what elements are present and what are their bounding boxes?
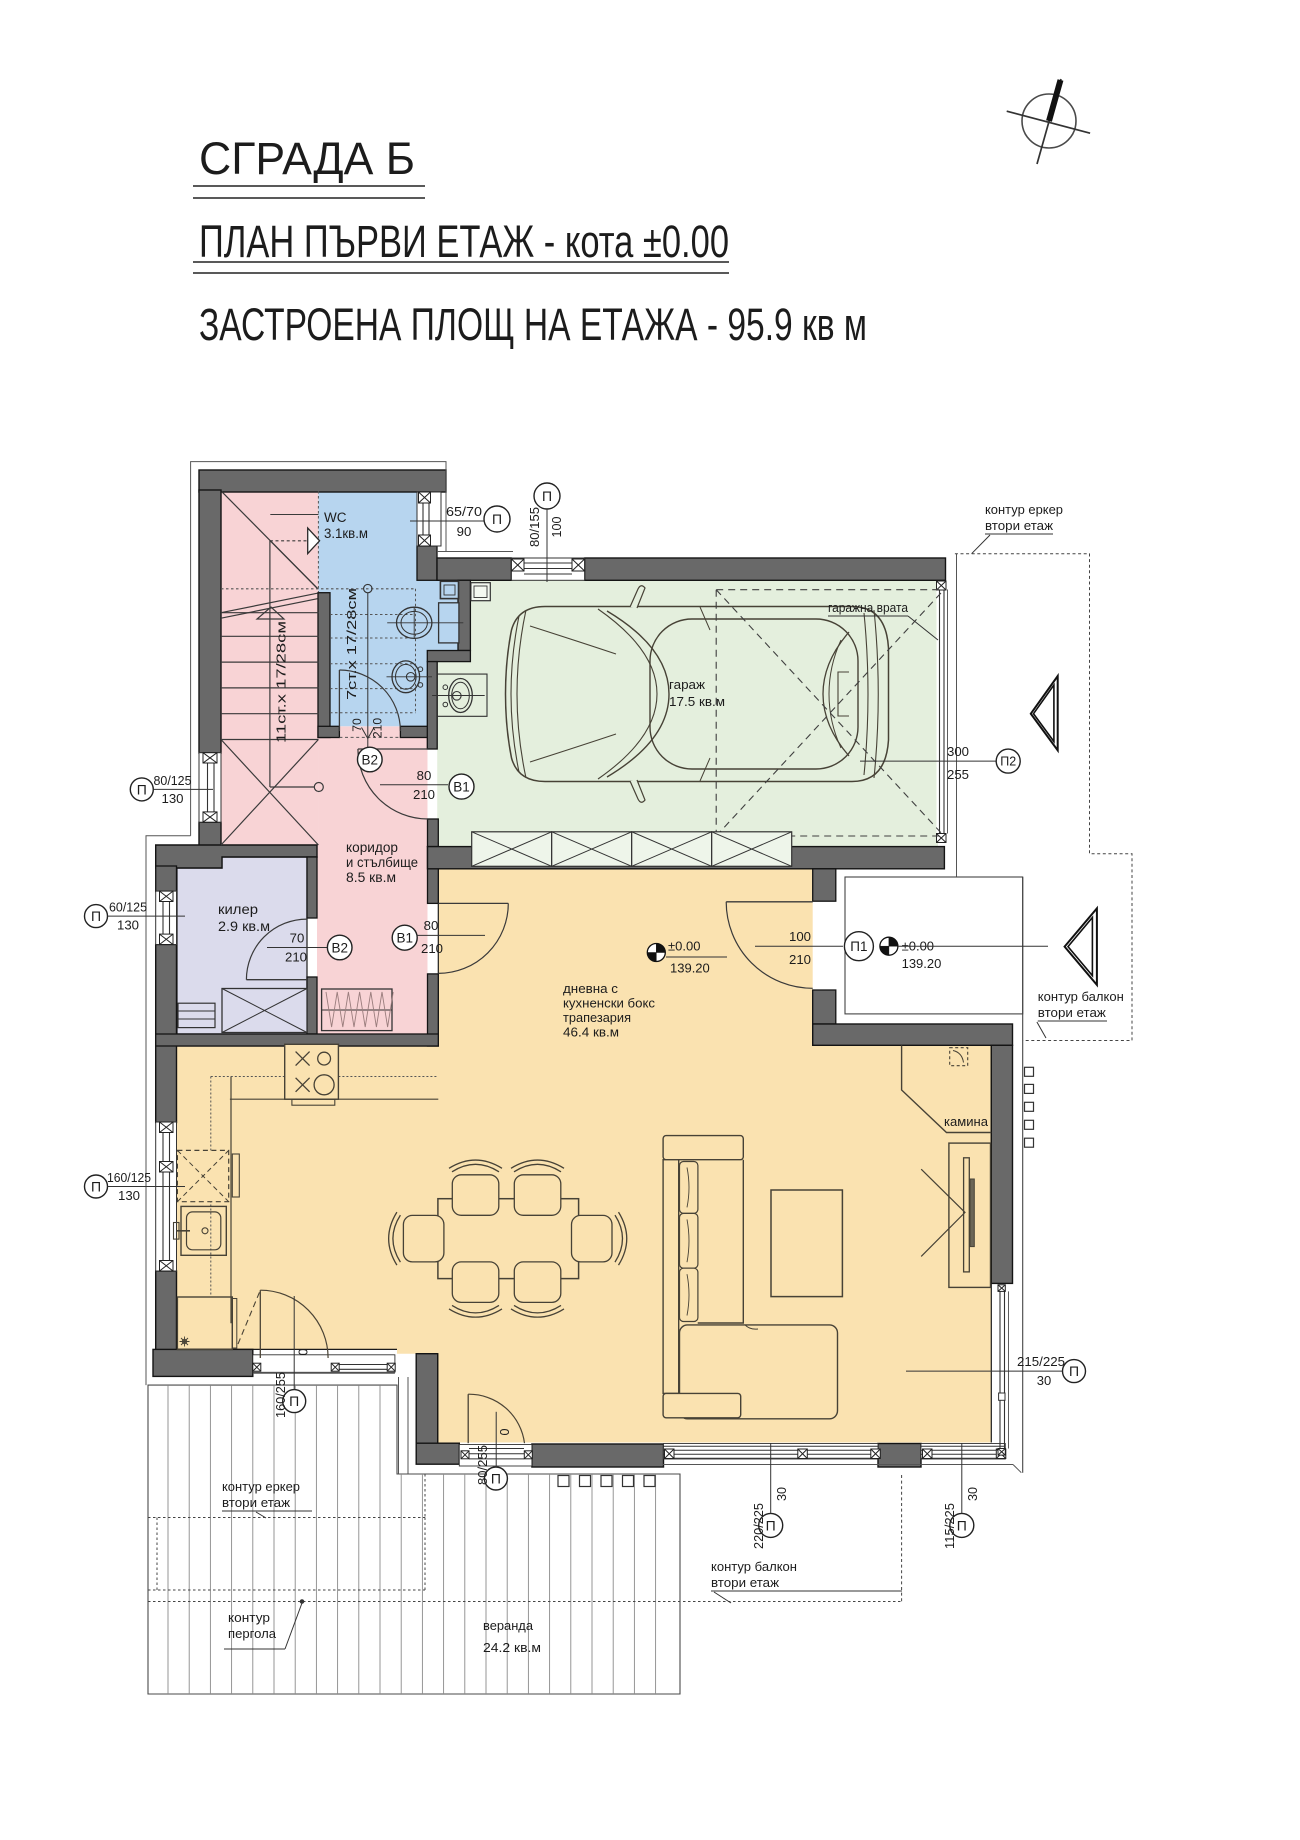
- svg-text:контур балкон: контур балкон: [1038, 989, 1124, 1004]
- svg-text:пергола: пергола: [228, 1626, 277, 1641]
- svg-text:11ст.х 17/28см: 11ст.х 17/28см: [274, 621, 289, 743]
- svg-text:60/125: 60/125: [109, 900, 147, 915]
- svg-text:100: 100: [789, 929, 811, 944]
- svg-text:гаражна врата: гаражна врата: [828, 600, 909, 615]
- svg-text:8.5 кв.м: 8.5 кв.м: [346, 870, 396, 885]
- svg-text:220/225: 220/225: [752, 1503, 766, 1549]
- svg-text:контур: контур: [228, 1610, 270, 1625]
- svg-text:210: 210: [789, 952, 811, 967]
- svg-text:139.20: 139.20: [670, 961, 710, 976]
- svg-text:65/70: 65/70: [446, 504, 482, 519]
- svg-text:ПЛАН ПЪРВИ ЕТАЖ - кота ±0.00: ПЛАН ПЪРВИ ЕТАЖ - кота ±0.00: [199, 216, 729, 267]
- svg-text:160/255: 160/255: [274, 1372, 288, 1418]
- svg-text:П: П: [289, 1393, 299, 1409]
- svg-text:30: 30: [966, 1487, 980, 1501]
- svg-text:П: П: [766, 1517, 776, 1533]
- svg-text:В2: В2: [362, 752, 379, 767]
- svg-text:80/125: 80/125: [154, 773, 192, 788]
- svg-text:контур балкон: контур балкон: [711, 1559, 797, 1574]
- svg-text:±0.00: ±0.00: [668, 939, 700, 954]
- svg-text:210: 210: [371, 718, 385, 739]
- svg-text:втори етаж: втори етаж: [985, 518, 1053, 533]
- svg-text:160/125: 160/125: [107, 1170, 151, 1185]
- svg-text:80: 80: [417, 768, 432, 783]
- svg-text:70: 70: [290, 931, 305, 946]
- svg-text:П: П: [957, 1517, 967, 1533]
- svg-text:80/155: 80/155: [528, 507, 542, 547]
- svg-text:210: 210: [413, 787, 435, 802]
- svg-text:веранда: веранда: [483, 1618, 534, 1633]
- svg-text:В1: В1: [453, 779, 470, 794]
- svg-text:втори етаж: втори етаж: [1038, 1005, 1106, 1020]
- svg-text:П: П: [91, 1179, 101, 1195]
- svg-text:7ст.х 17/28см: 7ст.х 17/28см: [344, 588, 359, 700]
- svg-text:П2: П2: [1000, 755, 1016, 769]
- svg-text:коридор: коридор: [346, 840, 398, 855]
- svg-text:130: 130: [117, 918, 139, 933]
- svg-text:контур еркер: контур еркер: [222, 1479, 300, 1494]
- svg-text:90: 90: [457, 524, 472, 539]
- svg-text:втори етаж: втори етаж: [711, 1575, 779, 1590]
- svg-text:камина: камина: [944, 1115, 988, 1129]
- svg-text:0: 0: [297, 1348, 311, 1355]
- svg-text:П: П: [492, 511, 502, 527]
- svg-text:30: 30: [775, 1487, 789, 1501]
- svg-text:В1: В1: [396, 931, 413, 946]
- svg-text:17.5 кв.м: 17.5 кв.м: [669, 694, 725, 709]
- svg-text:80: 80: [424, 918, 439, 933]
- svg-text:П: П: [1069, 1363, 1079, 1379]
- svg-text:300: 300: [947, 744, 969, 759]
- svg-text:и стълбище: и стълбище: [346, 855, 418, 870]
- svg-text:70: 70: [350, 718, 364, 732]
- svg-text:гараж: гараж: [669, 677, 705, 692]
- svg-text:210: 210: [421, 941, 443, 956]
- svg-text:30: 30: [1037, 1373, 1051, 1388]
- svg-text:контур еркер: контур еркер: [985, 502, 1063, 517]
- svg-text:210: 210: [285, 950, 307, 965]
- svg-text:0: 0: [498, 1428, 512, 1435]
- svg-text:80/255: 80/255: [476, 1445, 490, 1485]
- svg-text:2.9 кв.м: 2.9 кв.м: [218, 919, 270, 934]
- svg-text:дневна с: дневна с: [563, 981, 618, 996]
- svg-text:215/225: 215/225: [1017, 1354, 1065, 1369]
- svg-text:3.1кв.м: 3.1кв.м: [324, 526, 368, 541]
- svg-text:втори етаж: втори етаж: [222, 1495, 290, 1510]
- svg-text:В2: В2: [331, 940, 348, 955]
- svg-text:139.20: 139.20: [902, 956, 942, 971]
- svg-text:WC: WC: [324, 510, 347, 525]
- svg-text:П1: П1: [850, 939, 867, 954]
- svg-text:24.2 кв.м: 24.2 кв.м: [483, 1640, 541, 1655]
- svg-text:255: 255: [947, 767, 969, 782]
- svg-text:115/225: 115/225: [943, 1503, 957, 1549]
- svg-text:ЗАСТРОЕНА ПЛОЩ НА ЕТАЖА - 95.9: ЗАСТРОЕНА ПЛОЩ НА ЕТАЖА - 95.9 кв м: [199, 299, 867, 350]
- svg-text:46.4 кв.м: 46.4 кв.м: [563, 1025, 619, 1040]
- svg-text:трапезария: трапезария: [563, 1010, 631, 1025]
- svg-text:100: 100: [550, 516, 564, 537]
- svg-text:130: 130: [161, 791, 183, 806]
- svg-text:П: П: [91, 908, 101, 924]
- svg-text:кухненски бокс: кухненски бокс: [563, 996, 655, 1011]
- svg-text:килер: килер: [218, 902, 258, 917]
- svg-text:П: П: [491, 1471, 501, 1487]
- svg-text:П: П: [137, 781, 147, 797]
- svg-text:130: 130: [118, 1188, 140, 1203]
- svg-text:П: П: [542, 488, 552, 504]
- svg-text:СГРАДА Б: СГРАДА Б: [199, 133, 415, 184]
